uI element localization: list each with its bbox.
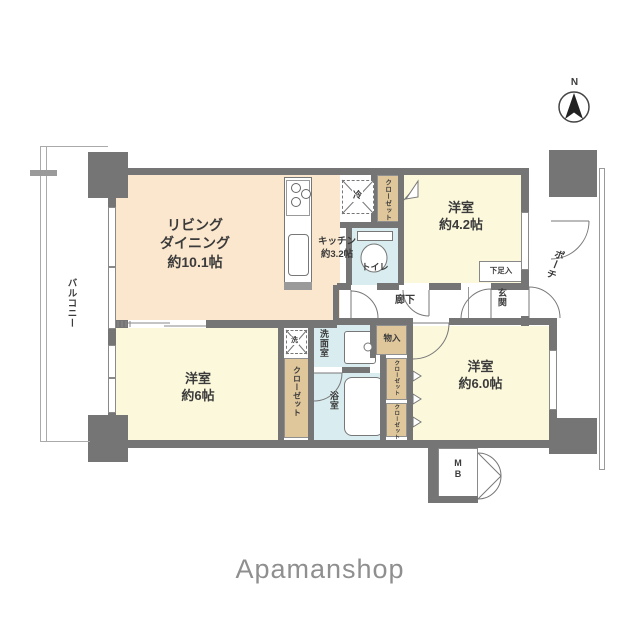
porch-edge	[604, 168, 605, 470]
porch-edge	[599, 469, 605, 470]
wall-hall-west	[333, 285, 339, 320]
shoe-cabinet-label: 下足入	[479, 266, 523, 276]
floorplan-canvas: リビング ダイニング 約10.1帖 キッチン 約3.2帖 洋室 約4.2帖 洋室…	[0, 0, 640, 640]
kitchen-label: キッチン 約3.2帖	[311, 236, 363, 261]
window-bedroom-se	[549, 350, 557, 410]
counter-end	[284, 282, 312, 290]
closet-north-label: クローゼット	[382, 179, 391, 221]
closet-se-lower-label: クローゼット	[392, 404, 399, 440]
bedroom-southwest-label: 洋室 約6帖	[128, 370, 268, 404]
porch-label: ポーチ	[542, 247, 566, 281]
wall-bedroom-se-west	[407, 318, 413, 440]
closet-southwest-label: クローゼット	[291, 366, 302, 417]
hallway-label: 廊下	[375, 294, 435, 307]
cupboard-label: 物入	[377, 333, 407, 344]
wall-hall-south	[449, 318, 557, 325]
wall-porch-west	[521, 168, 529, 212]
wall-west	[108, 329, 116, 345]
wall-pillar-se	[549, 418, 597, 454]
wall-bedroom-north-west	[398, 175, 404, 285]
porch-edge	[599, 168, 605, 169]
window-bedroom-north	[521, 212, 529, 270]
sliding-door-gap	[128, 320, 206, 328]
bedroom-southeast-label: 洋室 約6.0帖	[418, 358, 543, 392]
balcony-rail	[46, 146, 47, 442]
bathroom-label: 浴室	[327, 391, 339, 410]
window-mullion	[108, 377, 116, 379]
stove	[286, 180, 310, 216]
bathtub	[344, 377, 384, 436]
entrance-label: 玄関	[495, 288, 507, 307]
window-living	[108, 207, 116, 329]
wall-cupboard-west	[370, 325, 376, 358]
wall-north	[125, 168, 524, 175]
door-arc-entrance-hall	[461, 289, 491, 318]
brand-footer: Apamanshop	[0, 554, 640, 585]
washroom-label: 洗面室	[317, 329, 329, 358]
wall-hall-north	[429, 283, 461, 290]
door-arcs-meter-box	[478, 453, 501, 499]
balcony-rail	[40, 441, 90, 442]
kitchen-sink	[288, 234, 309, 276]
balcony-divider	[30, 170, 57, 176]
wall-mb-south	[428, 496, 478, 503]
compass-north-label: N	[567, 76, 582, 89]
wall-washroom-west	[308, 328, 314, 440]
wall-mb-west	[428, 448, 438, 502]
window-mullion	[108, 266, 116, 268]
wall-hall-south	[337, 318, 413, 325]
wall-south	[113, 440, 551, 448]
bedroom-north-label: 洋室 約4.2帖	[405, 199, 517, 233]
wall-closet-se-west	[380, 355, 386, 440]
door-arc-entrance	[529, 287, 560, 318]
window-bedroom-sw	[108, 345, 116, 413]
toilet-label: トイレ	[352, 262, 398, 274]
balcony-rail	[40, 146, 41, 442]
door-arc-toilet	[351, 290, 378, 318]
refrigerator-label: 冷	[352, 190, 363, 202]
balcony-label: バルコニー	[64, 278, 77, 328]
porch-edge	[599, 168, 600, 470]
compass-icon	[559, 92, 589, 122]
wall-toilet-north	[340, 222, 404, 228]
wall-bedroom-sw-east	[278, 328, 284, 440]
meter-box-label: M B	[444, 458, 472, 481]
living-dining-label: リビング ダイニング 約10.1帖	[130, 216, 260, 271]
washer-label: 洗	[290, 336, 299, 345]
wall-west	[108, 175, 116, 207]
closet-se-upper-label: クローゼット	[392, 360, 399, 396]
entrance-step-line	[468, 287, 469, 318]
wall-pillar-sw	[88, 415, 128, 462]
wall-pillar-ne	[549, 150, 597, 197]
balcony-rail	[40, 146, 108, 147]
wall-bath-divider	[342, 367, 370, 373]
wall-hall-north	[377, 283, 399, 290]
